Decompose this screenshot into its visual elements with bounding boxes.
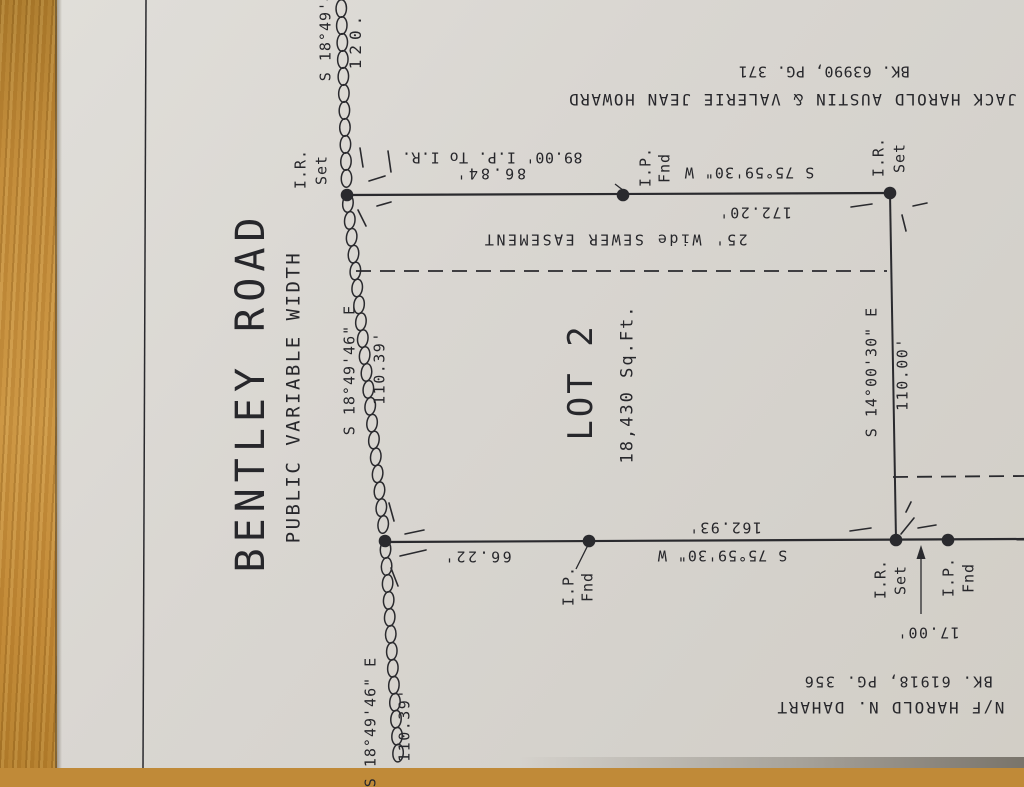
marker-ip-north-fnd: Fnd: [658, 153, 673, 183]
north-line-bearing: S 75°59'30" W: [684, 165, 814, 180]
south-line-bearing: S 75°59'30" W: [657, 548, 787, 563]
road-name: BENTLEY ROAD: [231, 212, 271, 573]
lot-title: LOT 2: [564, 323, 598, 440]
abutter-south-deed: BK. 61918, PG. 356: [803, 674, 993, 689]
abutter-south-name: N/F HAROLD N. DAHART: [776, 699, 1005, 715]
marker-ip-south-fnd: Fnd: [581, 572, 596, 602]
east-line-bearing: S 14°00'30" E: [865, 307, 880, 437]
marker-ip-south: I.P.: [562, 566, 577, 606]
east-line-distance: 110.00': [896, 337, 911, 411]
marker-ir-nw: I.R.: [294, 149, 309, 189]
sewer-easement-label: 25' Wide SEWER EASEMENT: [482, 232, 747, 247]
abutter-north-deed: BK. 63990, PG. 371: [738, 64, 910, 79]
frontage-distance-upper: 110.39': [373, 331, 388, 405]
lot-area: 18,430 Sq.Ft.: [620, 304, 637, 463]
south-extension-distance: 17.00': [896, 625, 959, 640]
marker-ip-se: I.P.: [942, 557, 957, 597]
road-type: PUBLIC VARIABLE WIDTH: [285, 251, 304, 544]
marker-ir-ne-set: Set: [893, 143, 908, 173]
frontage-bearing-upper: S 18°49'46" E: [343, 305, 358, 435]
marker-ir-ne: I.R.: [872, 137, 887, 177]
paper-bottom-edge-shadow: [300, 757, 1024, 768]
frontage-distance-top-partial: 120.: [348, 11, 364, 70]
wooden-desk-surface: [0, 0, 57, 768]
frontage-bearing-top-partial: S 18°49'46" E: [319, 0, 334, 81]
marker-ir-se: I.R.: [874, 559, 889, 599]
south-line-distance: 162.93': [688, 520, 762, 535]
marker-ir-nw-set: Set: [315, 155, 330, 185]
survey-plat-photo: { "colors": { "ink": "#2a2a2e", "paper":…: [0, 0, 1024, 768]
north-line-distance: 172.20': [718, 205, 792, 220]
frontage-distance-lower: 110.39': [398, 688, 413, 762]
north-segment-distance: 86.84': [454, 166, 526, 181]
abutter-north-name: JACK HAROLD AUSTIN & VALERIE JEAN HOWARD: [567, 91, 1016, 107]
paper-left-edge-shadow: [55, 0, 62, 768]
marker-ip-se-fnd: Fnd: [962, 563, 977, 593]
north-tie-distance: 89.00' I.P. To I.R.: [401, 150, 582, 165]
marker-ir-se-set: Set: [894, 565, 909, 595]
south-segment-distance: 66.22': [442, 549, 511, 564]
marker-ip-north: I.P.: [639, 147, 654, 187]
